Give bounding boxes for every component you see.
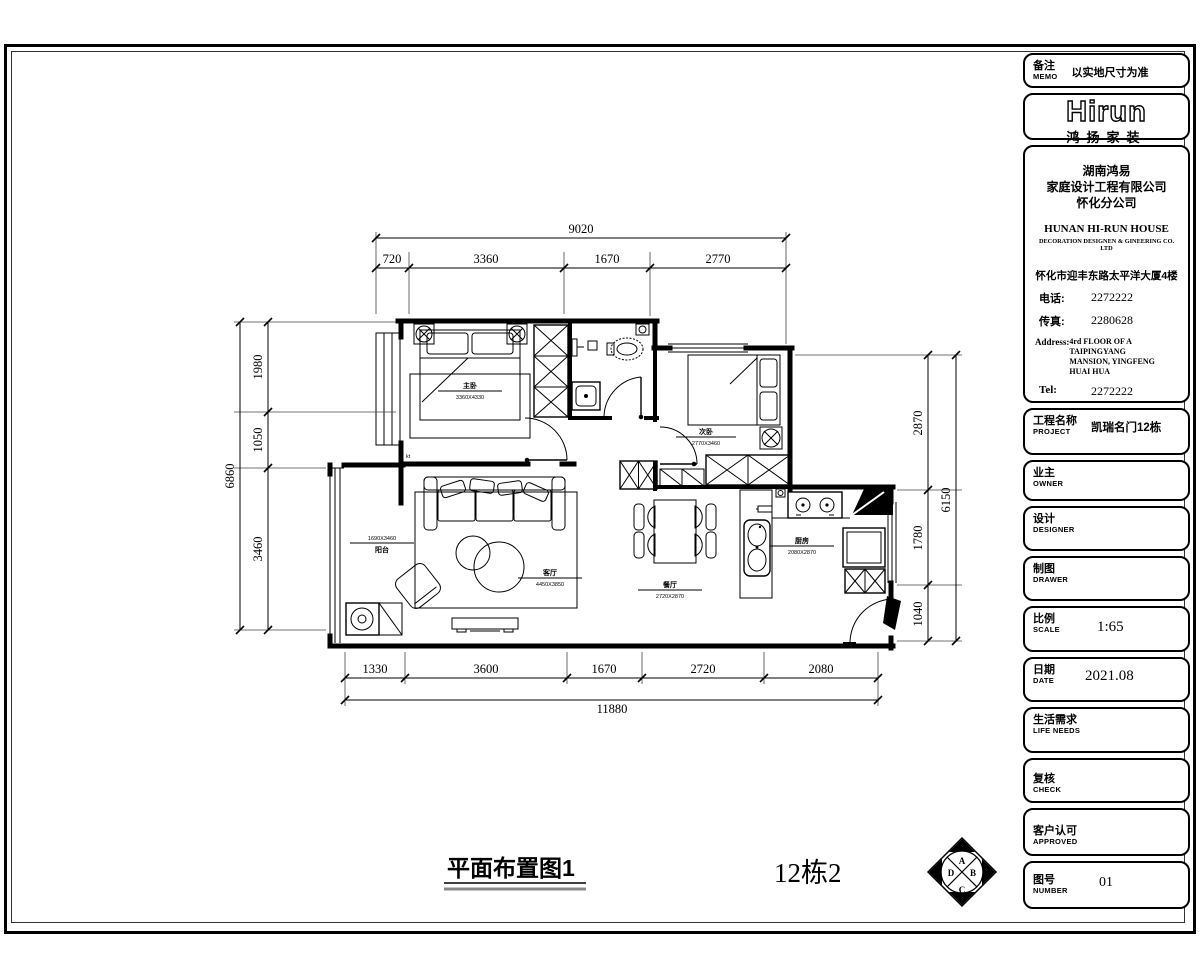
project-value: 凯瑞名门12栋: [1091, 419, 1161, 435]
dining-chair: [695, 532, 716, 558]
number-value: 01: [1099, 875, 1113, 891]
designer-label-en: DESIGNER: [1033, 525, 1180, 534]
dim-top-seg: 3360: [474, 252, 499, 266]
room-label-dining: 餐厅 2720X2870: [638, 580, 702, 600]
coffee-table: [456, 536, 490, 570]
scale-value: 1:65: [1097, 619, 1124, 636]
memo-label-en: MEMO: [1033, 72, 1058, 81]
dining-furniture: [634, 500, 716, 563]
life-needs-box: 生活需求 LIFE NEEDS: [1023, 707, 1190, 753]
life-needs-label-cn: 生活需求: [1033, 714, 1180, 726]
dim-bottom-seg: 3600: [474, 662, 499, 676]
dimensions-bottom: 1330 3600 1670 2720 2080 11880: [341, 652, 882, 716]
ceiling-lamp-icon: [414, 324, 434, 344]
sofa: [424, 477, 565, 530]
room-name: 次卧: [699, 427, 713, 436]
bathroom-door: [604, 377, 643, 419]
plan-title-group: 平面布置图1 12栋2: [444, 855, 842, 889]
date-value: 2021.08: [1085, 668, 1134, 685]
hirun-logo: Hirun: [1025, 97, 1188, 127]
company-name-en: HUNAN HI-RUN HOUSE: [1033, 223, 1180, 235]
memo-label-cn: 备注: [1033, 60, 1058, 72]
kitchen-cabinet: [845, 569, 885, 593]
unit-label: 12栋2: [774, 858, 842, 888]
logo-box: Hirun 鸿扬家装: [1023, 93, 1190, 140]
owner-label-cn: 业主: [1033, 467, 1180, 479]
tel-value: 2272222: [1091, 384, 1133, 399]
approved-label-en: APPROVED: [1033, 837, 1180, 846]
wardrobe: [534, 325, 568, 417]
dim-left-seg: 1050: [251, 428, 265, 453]
gas-valve-icon: [776, 489, 785, 497]
company-name-cn: 湖南鸿易: [1033, 164, 1180, 179]
living-room-furniture: [393, 477, 577, 632]
dining-table: [654, 500, 696, 563]
dim-right-seg: 1780: [911, 526, 925, 551]
hirun-logo-cn: 鸿扬家装: [1025, 127, 1188, 146]
balcony-cabinet: [379, 603, 402, 635]
drawer-box: 制图 DRAWER: [1023, 556, 1190, 601]
tv-cabinet: [452, 618, 518, 632]
phone-value: 2272222: [1091, 290, 1133, 306]
dim-top-seg: 1670: [595, 252, 620, 266]
room-dim: 4450X3850: [536, 582, 564, 588]
address-en-line: MANSION, YINGFENG: [1069, 357, 1180, 367]
dim-top-seg: 720: [383, 252, 402, 266]
dim-top-seg: 2770: [706, 252, 731, 266]
dining-chair: [634, 504, 655, 530]
title-block: 备注 MEMO 以实地尺寸为准 Hirun 鸿扬家装 湖南鸿易 家庭设计工程有限…: [1023, 53, 1190, 909]
company-box: 湖南鸿易 家庭设计工程有限公司 怀化分公司 HUNAN HI-RUN HOUSE…: [1023, 145, 1190, 403]
room-label-master: 主卧 3360X4330: [438, 381, 502, 401]
drawer-label-en: DRAWER: [1033, 575, 1180, 584]
room-dim: 2080X2870: [788, 550, 816, 556]
dim-right-seg: 1040: [911, 602, 925, 627]
dim-left-seg: 3460: [251, 537, 265, 562]
fax-value: 2280628: [1091, 313, 1133, 329]
room-dim: 1690X3460: [368, 536, 396, 542]
kitchen-sink-icon: [744, 520, 770, 576]
memo-box: 备注 MEMO 以实地尺寸为准: [1023, 53, 1190, 88]
coffee-table: [474, 542, 524, 592]
shower-icon: [572, 339, 584, 356]
drawer-label-cn: 制图: [1033, 563, 1180, 575]
room-name: 餐厅: [662, 580, 677, 589]
check-label-en: CHECK: [1033, 785, 1180, 794]
dim-right-total: 6150: [939, 488, 953, 513]
dim-right-seg: 2870: [911, 411, 925, 436]
drain-icon: [588, 341, 597, 350]
room-label-kitchen: 厨房 2080X2870: [770, 536, 834, 556]
room-name: 主卧: [463, 381, 477, 390]
bathroom-fixtures: [572, 324, 649, 410]
dimensions-top: 9020 720 3360 1670 2770: [372, 222, 790, 344]
fridge-icon: [843, 528, 885, 567]
drawing-sheet: .wall{stroke:#000;stroke-width:5;fill:no…: [0, 0, 1200, 960]
master-bedroom-furniture: kt: [406, 324, 568, 460]
check-label-cn: 复核: [1033, 773, 1180, 785]
second-bedroom-window: [668, 344, 748, 352]
compass-letter-b: B: [970, 868, 976, 878]
designer-label-cn: 设计: [1033, 513, 1180, 525]
toilet-icon: [607, 338, 643, 360]
memo-value: 以实地尺寸为准: [1072, 64, 1149, 80]
rug: [415, 492, 577, 608]
dim-bottom-seg: 1670: [592, 662, 617, 676]
fax-label: 传真:: [1039, 313, 1091, 329]
owner-label-en: OWNER: [1033, 479, 1180, 488]
check-box: 复核 CHECK: [1023, 758, 1190, 803]
project-box: 工程名称 PROJECT 凯瑞名门12栋: [1023, 408, 1190, 455]
room-dim: 2770X3460: [692, 441, 720, 447]
master-bedroom-door: [525, 418, 567, 462]
armchair: [393, 561, 444, 612]
company-sub-en: DECORATION DESIGNEN & GINEERING CO. LTD: [1033, 238, 1180, 252]
room-name: 厨房: [795, 536, 809, 545]
company-name-cn: 家庭设计工程有限公司: [1033, 180, 1180, 195]
dimensions-left: 1980 1050 3460 6860: [223, 318, 396, 634]
dim-bottom-seg: 2720: [691, 662, 716, 676]
room-dim: 2720X2870: [656, 594, 684, 600]
second-bedroom-furniture: [660, 355, 790, 486]
washbasin-icon: [572, 382, 600, 410]
address-label-en: Address:: [1035, 337, 1069, 377]
bay-window-master: [376, 333, 400, 445]
owner-box: 业主 OWNER: [1023, 460, 1190, 501]
room-dim: 3360X4330: [456, 395, 484, 401]
hall-cabinet: [620, 461, 657, 489]
dim-left-total: 6860: [223, 464, 237, 489]
shoe-cabinet: [660, 469, 704, 486]
approved-box: 客户认可 APPROVED: [1023, 808, 1190, 856]
floor-plan: .wall{stroke:#000;stroke-width:5;fill:no…: [0, 0, 1020, 960]
ceiling-lamp-icon: [760, 427, 782, 449]
date-box: 日期 DATE 2021.08: [1023, 657, 1190, 702]
compass-letter-c: C: [959, 885, 966, 895]
dim-left-seg: 1980: [251, 355, 265, 380]
range-hood-handle: [756, 506, 772, 512]
room-name: 阳台: [375, 545, 389, 554]
compass-letter-d: D: [948, 868, 955, 878]
number-box: 图号 NUMBER 01: [1023, 861, 1190, 909]
balcony-furniture: [346, 603, 402, 635]
kt-label: kt: [406, 454, 411, 460]
double-bed: [688, 355, 780, 425]
phone-label: 电话:: [1039, 290, 1091, 306]
company-branch-cn: 怀化分公司: [1033, 196, 1180, 211]
plan-title: 平面布置图1: [447, 855, 575, 881]
tel-label-en: Tel:: [1039, 384, 1091, 399]
dim-bottom-seg: 1330: [363, 662, 388, 676]
dining-chair: [695, 504, 716, 530]
vent-fan-icon: [636, 324, 649, 335]
room-name: 客厅: [542, 568, 557, 577]
balcony-window: [330, 468, 344, 643]
address-en-line: HUAI HUA: [1069, 367, 1180, 377]
room-label-living: 客厅 4450X3850: [518, 568, 582, 588]
approved-label-cn: 客户认可: [1033, 825, 1180, 837]
designer-box: 设计 DESIGNER: [1023, 506, 1190, 551]
kitchen-fixtures: [740, 489, 893, 598]
room-label-second: 次卧 2770X3460: [676, 427, 736, 447]
life-needs-label-en: LIFE NEEDS: [1033, 726, 1180, 735]
dim-top-total: 9020: [569, 222, 594, 236]
compass-letter-a: A: [959, 856, 966, 866]
ceiling-lamp-icon: [507, 324, 527, 344]
gas-stove-icon: [788, 492, 842, 518]
address-en-line: 4rd FLOOR OF A TAIPINGYANG: [1069, 337, 1180, 357]
walls: [330, 321, 893, 648]
corner-column: [852, 489, 893, 515]
wardrobe: [706, 455, 790, 485]
compass-icon: A B C D: [928, 838, 996, 906]
washing-machine-icon: [346, 603, 379, 635]
dining-chair: [634, 532, 655, 558]
company-address-cn: 怀化市迎丰东路太平洋大厦4楼: [1033, 268, 1180, 283]
dim-bottom-total: 11880: [597, 702, 628, 716]
dim-bottom-seg: 2080: [809, 662, 834, 676]
room-label-balcony: 1690X3460 阳台: [350, 536, 414, 554]
scale-box: 比例 SCALE 1:65: [1023, 606, 1190, 652]
